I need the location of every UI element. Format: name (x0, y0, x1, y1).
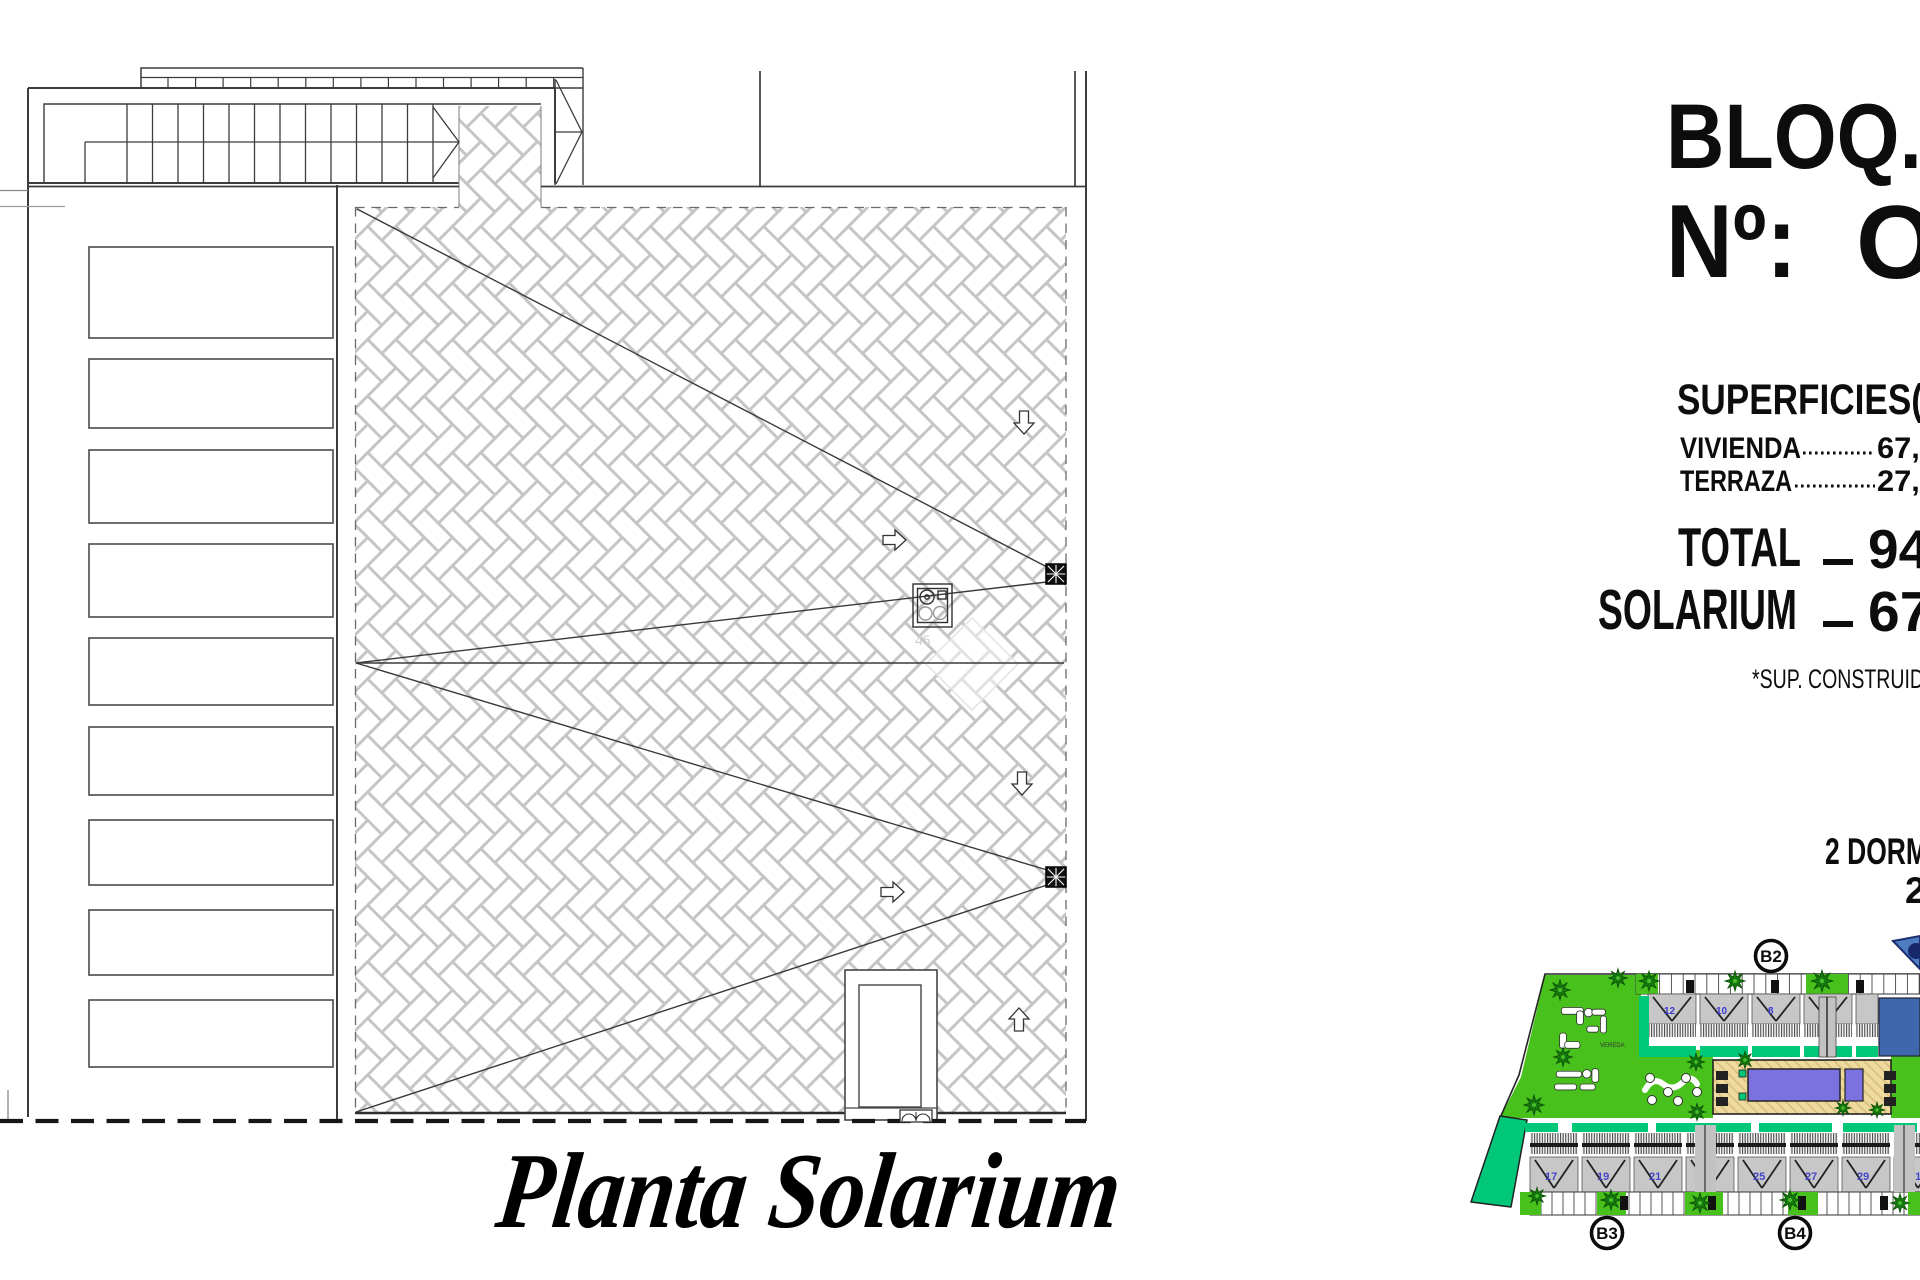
svg-text:27: 27 (1805, 1171, 1817, 1183)
svg-text:VEREDA: VEREDA (1600, 1043, 1625, 1049)
svg-text:27,1: 27,1 (1877, 465, 1920, 498)
svg-text:19: 19 (1597, 1171, 1609, 1183)
svg-text:25: 25 (1753, 1171, 1765, 1183)
svg-text:BLOQ.: BLOQ. (1666, 86, 1920, 188)
svg-text:2 DORM: 2 DORM (1825, 831, 1920, 872)
svg-text:8: 8 (1768, 1006, 1774, 1017)
svg-text:Nº:: Nº: (1666, 184, 1797, 300)
svg-text:67,3: 67,3 (1868, 580, 1920, 644)
svg-text:94,7: 94,7 (1868, 518, 1920, 580)
svg-text:B2: B2 (1760, 947, 1782, 966)
svg-text:67,6: 67,6 (1877, 432, 1920, 465)
svg-text:TERRAZA: TERRAZA (1680, 465, 1792, 498)
svg-text:TOTAL: TOTAL (1678, 516, 1801, 578)
svg-text:B3: B3 (1596, 1224, 1618, 1243)
svg-text:2 B: 2 B (1905, 870, 1920, 911)
svg-text:45: 45 (915, 632, 931, 648)
svg-text:29: 29 (1857, 1171, 1869, 1183)
svg-text:21: 21 (1649, 1171, 1661, 1183)
svg-text:SUPERFICIES(: SUPERFICIES( (1677, 376, 1920, 424)
svg-text:B4: B4 (1784, 1224, 1806, 1243)
svg-text:12: 12 (1664, 1006, 1676, 1017)
svg-text:VIVIENDA: VIVIENDA (1680, 432, 1801, 465)
svg-text:17: 17 (1545, 1171, 1557, 1183)
svg-text:O8: O8 (1856, 185, 1920, 301)
svg-text:*SUP. CONSTRUID: *SUP. CONSTRUID (1752, 664, 1920, 694)
svg-text:SOLARIUM: SOLARIUM (1598, 578, 1797, 642)
svg-text:10: 10 (1716, 1006, 1728, 1017)
svg-text:Planta Solarium: Planta Solarium (490, 1131, 1128, 1251)
